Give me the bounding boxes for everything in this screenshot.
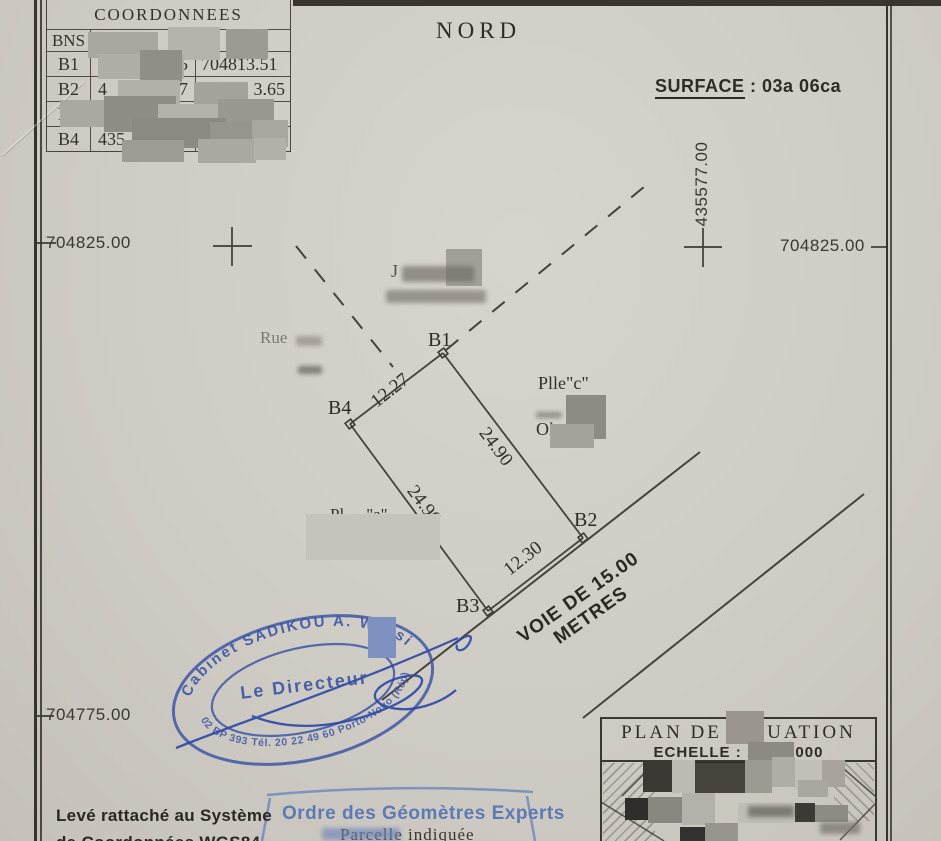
minimap-hatch-right (834, 763, 874, 821)
annotation-fragment: J (391, 261, 398, 282)
point-label-b2: B2 (574, 509, 597, 532)
grid-coordinate-right-top: 704825.00 (780, 236, 865, 256)
y-cell: 4805.88 (196, 127, 290, 151)
plan-de-situation-box: PLAN DE SITUATION ECHELLE : 1/000 (600, 717, 877, 841)
scanned-survey-plan: Cabinet SADIKOU A. Wassi 02 BP 393 Tél. … (0, 0, 941, 841)
datum-note-line2: de Coordonnées WGS84 (56, 833, 260, 841)
y-cell (196, 102, 290, 126)
page-border-left-inner (40, 0, 42, 841)
y-cell: 7043.65 (196, 77, 290, 101)
page-border-right-inner (886, 0, 888, 841)
y-cell: 704813.51 (196, 52, 290, 76)
ordre-geometres-label: Ordre des Géomètres Experts (282, 803, 565, 825)
x-cell: 464.67 (91, 77, 196, 101)
point-id: B2 (47, 77, 91, 101)
north-label: NORD (436, 18, 521, 44)
x-cell: .65 (91, 52, 196, 76)
table-row: B1 .65 704813.51 (47, 51, 290, 76)
grid-ticks (36, 243, 887, 716)
plan-box-separator (602, 760, 875, 762)
minimap-hatch-left (603, 763, 655, 841)
table-row: B3 43 (47, 101, 290, 126)
datum-note-line1: Levé rattaché au Système (56, 806, 272, 826)
dashed-boundary-lines (296, 182, 650, 367)
col-header-bns: BNS (47, 30, 91, 51)
col-header-x: X (91, 30, 196, 51)
x-cell: 43 (91, 102, 196, 126)
scan-edge-band (293, 0, 941, 6)
coordinates-table: COORDONNEES BNS X B1 .65 704813.51 B2 46… (46, 0, 291, 152)
owner-name-fragment: Olo (536, 419, 563, 440)
coordinates-table-title: COORDONNEES (47, 0, 290, 29)
col-header-y (196, 30, 290, 51)
parcel-c-label: Plle"c" (538, 373, 589, 394)
surface-label: SURFACE : 03a 06ca (655, 76, 841, 97)
table-row: B2 464.67 7043.65 (47, 76, 290, 101)
table-row: B4 435 4805.88 (47, 126, 290, 151)
point-label-b1: B1 (428, 329, 451, 352)
grid-coordinate-vertical: 435577.00 (692, 114, 712, 254)
parcelle-indiquee-label: Parcelle indiquée (340, 825, 475, 841)
street-name-fragment: Rue (260, 328, 287, 348)
grid-coordinate-left-top: 704825.00 (46, 233, 131, 253)
parcel-a-label: Pl"a" (330, 505, 388, 525)
coordinates-table-header: BNS X (47, 29, 290, 51)
point-label-b3: B3 (456, 595, 479, 618)
point-id: B3 (47, 102, 91, 126)
point-id: B1 (47, 52, 91, 76)
grid-cross-left (213, 227, 252, 266)
grid-coordinate-left-bottom: 704775.00 (46, 705, 131, 725)
page-border-right (890, 0, 892, 841)
x-cell: 435 (91, 127, 196, 151)
point-id: B4 (47, 127, 91, 151)
point-label-b4: B4 (328, 397, 351, 420)
plan-box-title: PLAN DE SITUATION (602, 722, 875, 744)
